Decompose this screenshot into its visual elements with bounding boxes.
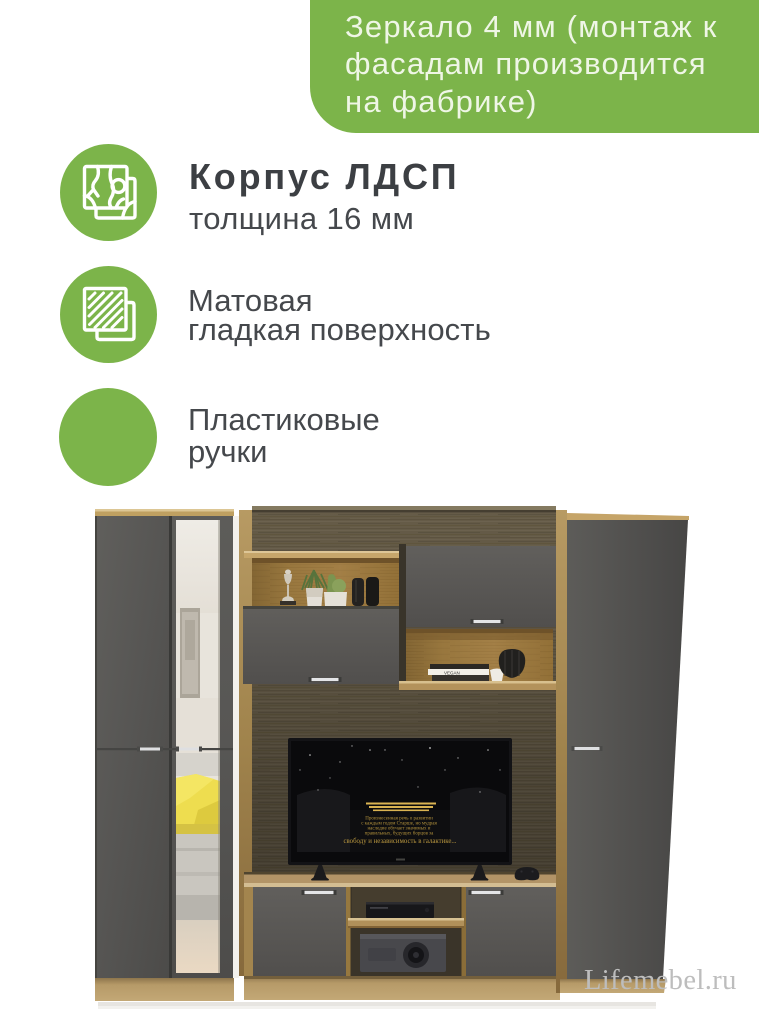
svg-text:VEGAN: VEGAN — [444, 671, 460, 676]
svg-text:Lifemebel.ru: Lifemebel.ru — [584, 965, 737, 996]
svg-text:свободу и независимость в гала: свободу и независимость в галактике... — [344, 838, 457, 845]
svg-text:правильных, будущих борцов за: правильных, будущих борцов за — [365, 832, 434, 837]
